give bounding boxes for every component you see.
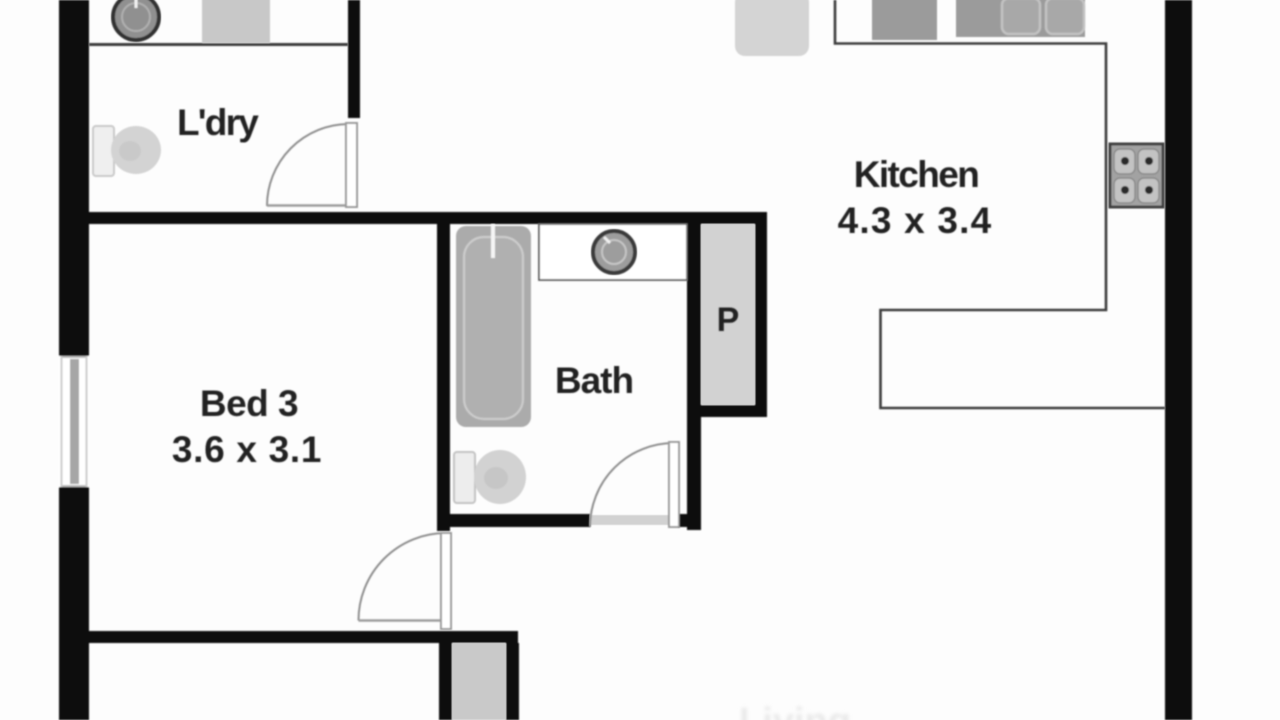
svg-text:Kitchen: Kitchen [854,154,978,195]
svg-text:Bed 3: Bed 3 [200,383,298,424]
svg-text:P: P [717,301,740,339]
svg-text:L'dry: L'dry [177,102,259,143]
svg-text:Living: Living [739,701,851,720]
svg-text:Bath: Bath [555,360,633,401]
svg-text:3.6 x 3.1: 3.6 x 3.1 [172,429,322,470]
svg-text:4.3 x 3.4: 4.3 x 3.4 [838,200,993,241]
